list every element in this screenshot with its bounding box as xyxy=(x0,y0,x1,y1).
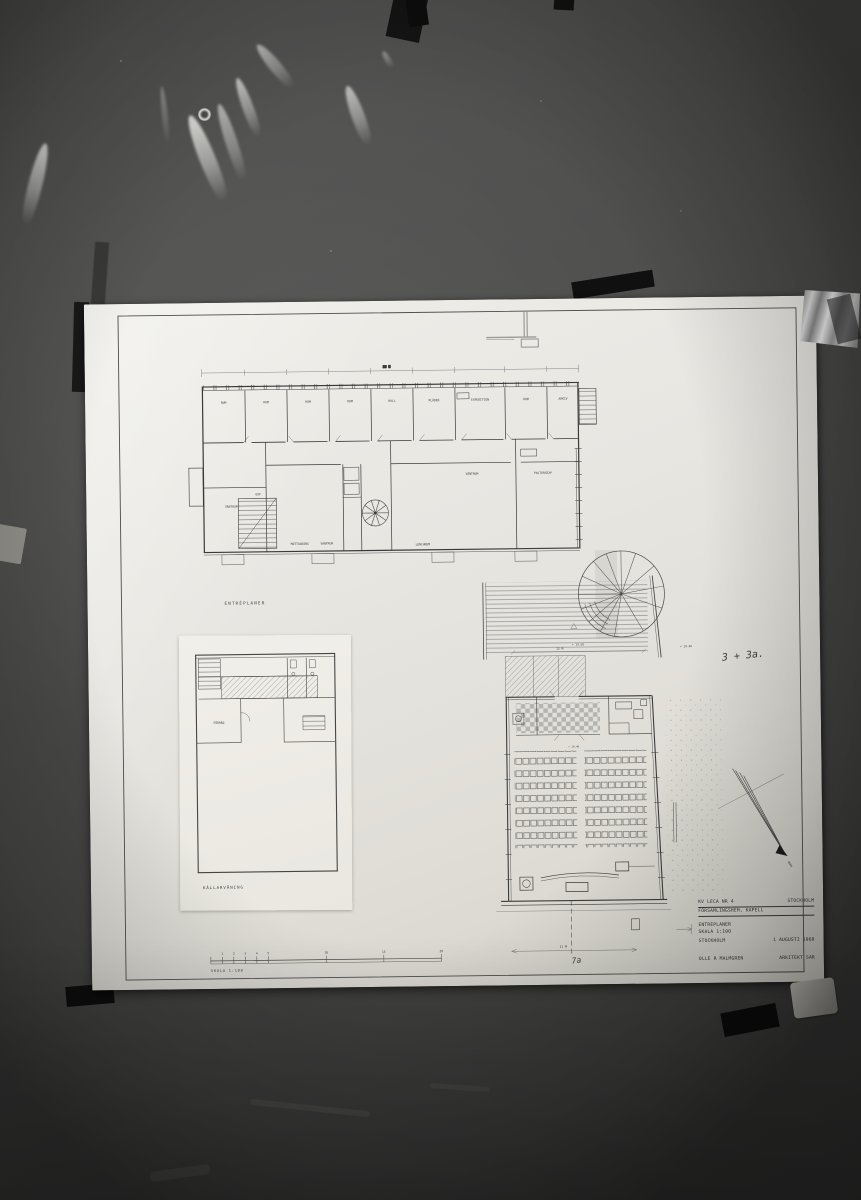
photograph-of-drawing: 35 M xyxy=(0,0,861,1200)
tape-strip xyxy=(405,0,429,27)
scale-tick: 2 xyxy=(233,952,235,956)
room-label: ARKIV xyxy=(558,397,567,401)
plan-linework: 35 M xyxy=(84,296,824,991)
room-label: VÄNTRUM xyxy=(320,540,333,545)
drawing-sheet: 35 M xyxy=(84,296,824,991)
scale-tick: 3 xyxy=(244,952,246,956)
paper-scrap xyxy=(0,524,27,565)
title-project: KV LECA NR 4 xyxy=(698,900,734,906)
title-city: STOCKHOLM xyxy=(787,899,814,905)
tape-strip xyxy=(720,1003,780,1037)
level-mark: + 19.50 xyxy=(572,642,584,646)
scale-tick: 10 xyxy=(324,951,328,955)
basement-plan-title: KÄLLARVÅNING xyxy=(203,885,244,890)
scale-caption: SKALA 1:100 xyxy=(211,969,244,973)
room-label: RUM xyxy=(523,397,529,401)
level-mark: + 19.40 xyxy=(568,744,579,748)
tiled-entry-floor xyxy=(516,702,600,733)
stair xyxy=(238,498,277,548)
font xyxy=(520,877,533,890)
chapel-plan: + 19.40 xyxy=(494,689,724,958)
exterior-stair xyxy=(579,388,596,424)
pew-block-left xyxy=(514,751,577,849)
title-architect: OLLE R MALMGREN xyxy=(699,957,744,963)
paint-smear xyxy=(253,41,299,93)
room-label: RUM xyxy=(305,400,311,404)
title-scale: SKALA 1:100 xyxy=(699,928,815,935)
wall-scuff xyxy=(430,1083,490,1092)
scale-tick: 5 xyxy=(267,951,269,955)
room-label: HALL xyxy=(388,399,395,403)
room-label: KLÄDER xyxy=(429,397,440,402)
room-label: VÄNTRUM xyxy=(225,504,238,509)
level-mark: + 19.40 xyxy=(680,644,692,648)
title-architect-title: ARKITEKT SAR xyxy=(779,956,815,962)
upper-plan-title: ENTRÉPLANER xyxy=(224,600,265,605)
scale-tick: 15 xyxy=(382,950,386,954)
paint-smear xyxy=(159,86,171,148)
north-label: NORR xyxy=(787,860,794,868)
room-label: RUM xyxy=(263,400,269,404)
paint-smear xyxy=(18,142,53,231)
spiral-stair xyxy=(362,500,388,526)
room-label: LUNCHRUM xyxy=(416,542,431,546)
title-subtitle: FÖRSAMLINGSHEM, KAPELL xyxy=(698,908,814,917)
basement-plan: FÖRRÅD xyxy=(195,653,338,873)
room-label: VÄNTRUM xyxy=(466,471,479,476)
paved-walkway xyxy=(505,655,585,697)
wall-scuff xyxy=(150,1164,211,1182)
speckles xyxy=(666,697,723,893)
scale-tick: 1 xyxy=(221,952,223,956)
handwritten-note: 3 + 3a. xyxy=(720,649,764,664)
terrace: 12 M + 19.50 + 19.40 xyxy=(482,549,692,698)
title-block: KV LECA NR 4 STOCKHOLM FÖRSAMLINGSHEM, K… xyxy=(698,899,815,963)
room-label: RUM xyxy=(347,399,353,403)
tape-shadow xyxy=(91,242,109,305)
room-label: FÖRRÅD xyxy=(214,720,225,725)
room-label: RUM xyxy=(221,401,227,405)
altar xyxy=(566,882,588,891)
room-label: MOTTAGNING xyxy=(291,542,309,546)
paint-smear xyxy=(341,84,376,150)
room-label: EXP xyxy=(255,492,261,496)
handwritten-mark: 7a xyxy=(571,955,582,965)
scale-tick: 4 xyxy=(256,951,258,955)
paint-blob xyxy=(198,108,211,121)
dim-top-label: 35 M xyxy=(383,365,391,369)
dim-bottom-label: 11 M xyxy=(560,945,567,949)
scale-bar: 1 2 3 4 5 10 15 20 SKALA 1:100 xyxy=(211,949,444,973)
room-label: PASTORSEXP xyxy=(534,471,552,475)
pencil-sketch xyxy=(486,311,538,348)
wall-scuff xyxy=(250,1099,370,1118)
tape-strip xyxy=(571,270,655,300)
dust-specks xyxy=(120,60,122,62)
paint-smear xyxy=(380,50,395,70)
dim-courtyard-label: 12 M xyxy=(556,647,563,651)
pew-block-right xyxy=(584,750,647,848)
pulpit xyxy=(616,862,629,871)
room-label: EXPEDITION xyxy=(471,398,489,402)
north-arrow: NORR xyxy=(718,768,794,869)
scale-tick: 20 xyxy=(439,949,443,953)
crumpled-tape xyxy=(790,977,839,1019)
upper-floor-plan: 35 M xyxy=(188,362,598,565)
tape-strip xyxy=(554,0,575,11)
title-date: 1 AUGUSTI 1960 xyxy=(773,938,815,944)
title-place: STOCKHOLM xyxy=(699,939,726,945)
paint-smear xyxy=(232,76,265,142)
